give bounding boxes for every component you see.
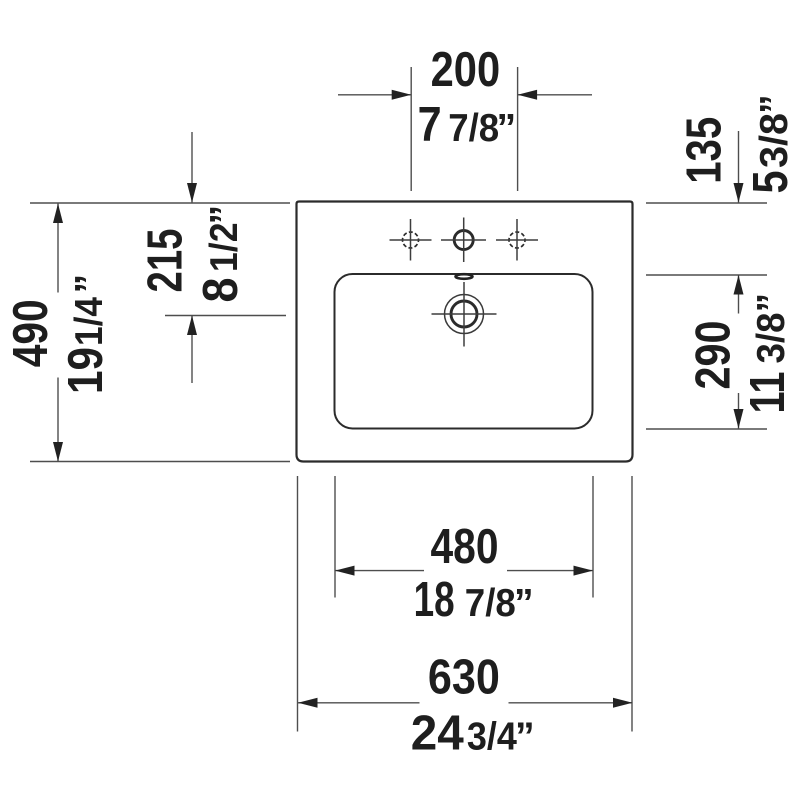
svg-text:24: 24: [411, 706, 465, 761]
svg-text:”: ”: [202, 205, 246, 225]
svg-text:135: 135: [676, 117, 731, 184]
svg-text:3/8: 3/8: [749, 313, 793, 364]
svg-text:1/2: 1/2: [202, 223, 246, 273]
svg-text:”: ”: [752, 94, 796, 114]
svg-text:5: 5: [743, 171, 798, 194]
svg-text:”: ”: [497, 106, 517, 150]
svg-text:”: ”: [514, 581, 534, 625]
svg-text:3/8: 3/8: [752, 113, 796, 168]
svg-text:”: ”: [67, 274, 111, 294]
svg-text:215: 215: [138, 229, 193, 293]
svg-text:”: ”: [515, 715, 535, 759]
svg-text:490: 490: [3, 299, 58, 367]
svg-text:7/8: 7/8: [448, 106, 499, 150]
svg-text:1/4: 1/4: [67, 297, 111, 346]
svg-text:3/4: 3/4: [467, 715, 517, 759]
svg-text:8: 8: [193, 278, 248, 303]
svg-text:7/8: 7/8: [465, 581, 516, 625]
svg-text:18: 18: [414, 572, 455, 627]
svg-text:19: 19: [58, 347, 113, 394]
svg-text:11: 11: [740, 372, 795, 414]
svg-text:480: 480: [431, 519, 499, 574]
svg-text:290: 290: [686, 321, 741, 390]
svg-text:7: 7: [418, 97, 442, 152]
svg-text:”: ”: [749, 293, 793, 313]
svg-text:630: 630: [428, 650, 500, 705]
svg-text:200: 200: [431, 42, 501, 97]
